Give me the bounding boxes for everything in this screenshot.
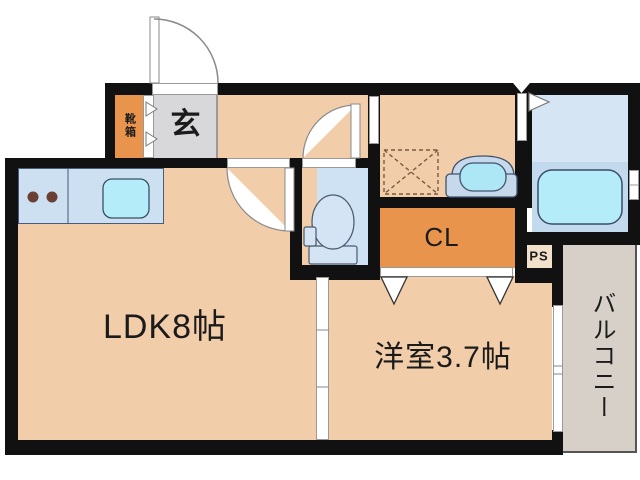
wall bbox=[525, 232, 640, 245]
wall bbox=[218, 83, 640, 95]
western-room-label: 洋室3.7帖 bbox=[374, 343, 512, 373]
entry-door-threshold bbox=[152, 83, 218, 95]
bathroom-window bbox=[629, 170, 639, 200]
wall bbox=[628, 95, 640, 232]
entry-door bbox=[150, 17, 218, 83]
closet-label: CL bbox=[424, 224, 459, 250]
wall bbox=[552, 283, 563, 307]
bathroom-door bbox=[517, 93, 527, 141]
balcony-label: バルコニー bbox=[589, 291, 613, 421]
balcony-window bbox=[553, 305, 563, 432]
room-bathroom-upper bbox=[532, 95, 628, 162]
floor-plan: 靴箱 玄 LDK8帖 洋室3.7帖 CL PS バルコニー bbox=[0, 0, 640, 480]
wall bbox=[290, 265, 380, 280]
ldk-door-opening bbox=[227, 158, 290, 168]
wall bbox=[552, 245, 563, 283]
room-washroom bbox=[378, 95, 515, 197]
room-bathroom-lower bbox=[532, 162, 628, 232]
shoe-box-door bbox=[143, 95, 154, 158]
room-hallway bbox=[218, 95, 368, 158]
wall bbox=[105, 83, 152, 95]
wall bbox=[5, 158, 18, 455]
kitchen-counter bbox=[18, 168, 164, 224]
pipe-space-label: PS bbox=[529, 250, 548, 263]
ldk-label: LDK8帖 bbox=[103, 310, 227, 344]
washroom-sliding-door bbox=[369, 96, 379, 144]
toilet-door-opening bbox=[302, 158, 356, 168]
closet-sliding-doors bbox=[380, 267, 513, 277]
wall bbox=[377, 197, 517, 208]
entrance-label: 玄 bbox=[171, 110, 202, 140]
wall bbox=[290, 158, 302, 280]
shoe-box-label: 靴箱 bbox=[124, 113, 135, 139]
partition-sliding-door bbox=[316, 277, 329, 440]
wall bbox=[5, 158, 227, 168]
wall bbox=[5, 440, 563, 455]
wall bbox=[105, 83, 115, 168]
